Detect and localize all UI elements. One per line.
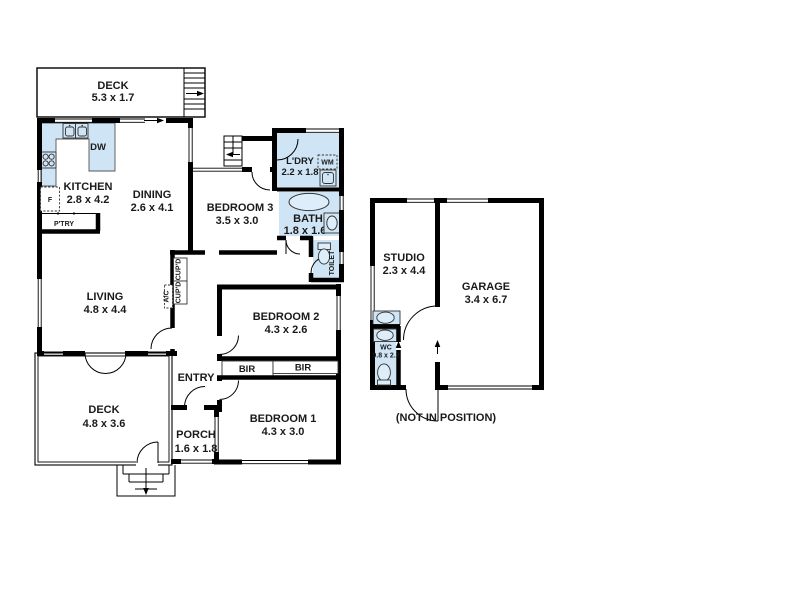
svg-text:BEDROOM 2: BEDROOM 2 (253, 311, 320, 323)
svg-text:BEDROOM 1: BEDROOM 1 (250, 413, 317, 425)
svg-text:2.2 x 1.8: 2.2 x 1.8 (282, 167, 319, 178)
svg-text:A/C: A/C (164, 290, 171, 302)
svg-text:4.3 x 2.6: 4.3 x 2.6 (265, 324, 308, 336)
svg-text:2.6 x 4.1: 2.6 x 4.1 (131, 202, 174, 214)
svg-text:BATH: BATH (293, 213, 323, 225)
svg-text:1.8 x 1.6: 1.8 x 1.6 (284, 225, 327, 237)
svg-text:L'DRY: L'DRY (286, 156, 314, 167)
svg-text:LIVING: LIVING (87, 291, 124, 303)
svg-text:ENTRY: ENTRY (178, 372, 216, 384)
svg-text:BEDROOM 3: BEDROOM 3 (207, 202, 274, 214)
svg-text:4.3 x 3.0: 4.3 x 3.0 (262, 426, 305, 438)
svg-text:1.6 x 1.8: 1.6 x 1.8 (175, 443, 218, 455)
svg-text:3.5 x 3.0: 3.5 x 3.0 (216, 215, 259, 227)
svg-text:2.8 x 4.2: 2.8 x 4.2 (67, 194, 110, 206)
svg-text:GARAGE: GARAGE (462, 281, 510, 293)
svg-text:WM: WM (321, 160, 334, 167)
svg-text:4.8 x 3.6: 4.8 x 3.6 (83, 418, 126, 430)
svg-text:3.4 x 6.7: 3.4 x 6.7 (465, 294, 508, 306)
svg-text:PORCH: PORCH (176, 429, 216, 441)
svg-text:P'TRY: P'TRY (54, 221, 74, 228)
svg-text:KITCHEN: KITCHEN (64, 181, 113, 193)
svg-text:DINING: DINING (133, 189, 172, 201)
svg-text:TOILET: TOILET (329, 250, 336, 275)
svg-text:BIR: BIR (295, 363, 312, 374)
svg-text:CUP'D: CUP'D (176, 282, 183, 304)
svg-text:5.3 x 1.7: 5.3 x 1.7 (92, 92, 135, 104)
svg-text:4.8 x 4.4: 4.8 x 4.4 (84, 304, 128, 316)
svg-text:DW: DW (90, 142, 106, 153)
svg-text:CUP'D: CUP'D (176, 259, 183, 281)
svg-text:DECK: DECK (88, 404, 119, 416)
svg-text:0.8 x 2.2: 0.8 x 2.2 (372, 353, 399, 360)
svg-text:BIR: BIR (239, 364, 256, 375)
svg-text:(NOT IN POSITION): (NOT IN POSITION) (396, 412, 497, 424)
svg-text:WC: WC (380, 345, 392, 352)
svg-text:F: F (48, 197, 53, 204)
svg-text:DECK: DECK (97, 80, 128, 92)
svg-text:STUDIO: STUDIO (383, 252, 425, 264)
svg-text:2.3 x 4.4: 2.3 x 4.4 (383, 265, 427, 277)
